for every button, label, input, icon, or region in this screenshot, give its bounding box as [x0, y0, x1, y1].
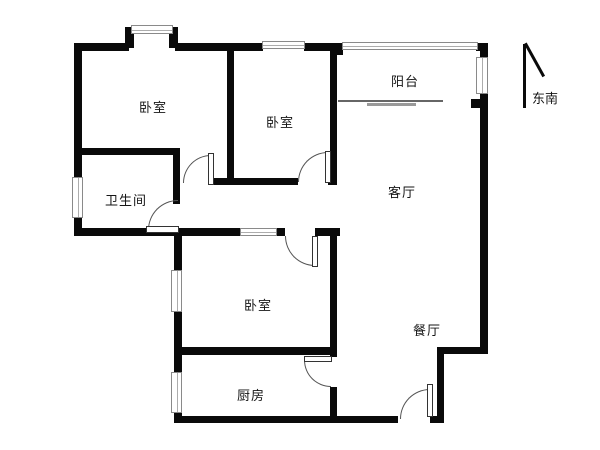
wall-top-left	[74, 43, 129, 51]
bedroom2-window	[262, 41, 305, 49]
compass-arrow-stem	[523, 44, 526, 108]
kitchen-door-arc	[304, 360, 331, 387]
wall-bedroom3-kitchen-divider	[174, 347, 337, 355]
wall-bathroom-top	[74, 148, 180, 155]
compass-label: 东南	[532, 92, 558, 105]
bedroom2-door-arc	[298, 152, 328, 182]
balcony-window	[342, 42, 478, 50]
wall-bottom-kitchen	[174, 416, 398, 423]
wall-hall-bedroom3-mid-segment	[277, 228, 285, 236]
kitchen-door-leaf	[304, 356, 332, 362]
balcony-sliding-door-track	[338, 100, 443, 102]
wall-bathroom-right	[173, 148, 180, 204]
wall-dining-step	[437, 347, 488, 354]
floor-plan: 卧室 卧室 阳台 客厅 卫生间 卧室 厨房 餐厅 东南	[0, 0, 600, 450]
wall-left-upper	[74, 43, 82, 177]
balcony-divider-right-stub	[471, 99, 481, 108]
room-label-living-room: 客厅	[388, 186, 416, 199]
room-label-bedroom-1: 卧室	[139, 101, 167, 114]
balcony-sliding-door-panel	[367, 103, 416, 106]
bedroom2-door-leaf	[325, 151, 331, 183]
room-label-kitchen: 厨房	[237, 389, 265, 402]
room-label-dining-room: 餐厅	[413, 324, 441, 337]
entrance-door-leaf	[427, 384, 433, 417]
wall-bedroom3-right	[330, 228, 337, 357]
bedroom1-door-leaf	[208, 153, 214, 185]
room-label-balcony: 阳台	[391, 75, 419, 88]
bedroom3-door-leaf	[312, 236, 318, 267]
entrance-door-arc	[400, 389, 430, 419]
wall-bedroom2-right	[330, 45, 337, 185]
kitchen-window	[171, 372, 182, 413]
bathroom-window	[72, 177, 83, 218]
wall-bedroom2-bottom	[211, 178, 298, 185]
wall-dining-right	[437, 347, 444, 423]
bathroom-door-leaf	[146, 226, 179, 233]
wall-top-bedroom1-2	[175, 43, 263, 51]
bedroom3-transom-window	[240, 228, 277, 236]
balcony-side-window	[476, 57, 488, 94]
bedroom3-door-arc	[285, 236, 315, 266]
bay-window	[131, 25, 173, 34]
wall-bedroom1-bedroom2-divider	[227, 45, 234, 185]
bedroom1-door-arc	[183, 155, 211, 183]
room-label-bedroom-2: 卧室	[266, 116, 294, 129]
compass-arrow-head	[524, 43, 545, 78]
bedroom3-window	[171, 270, 182, 312]
room-label-bathroom: 卫生间	[105, 194, 147, 207]
room-label-bedroom-3: 卧室	[244, 299, 272, 312]
